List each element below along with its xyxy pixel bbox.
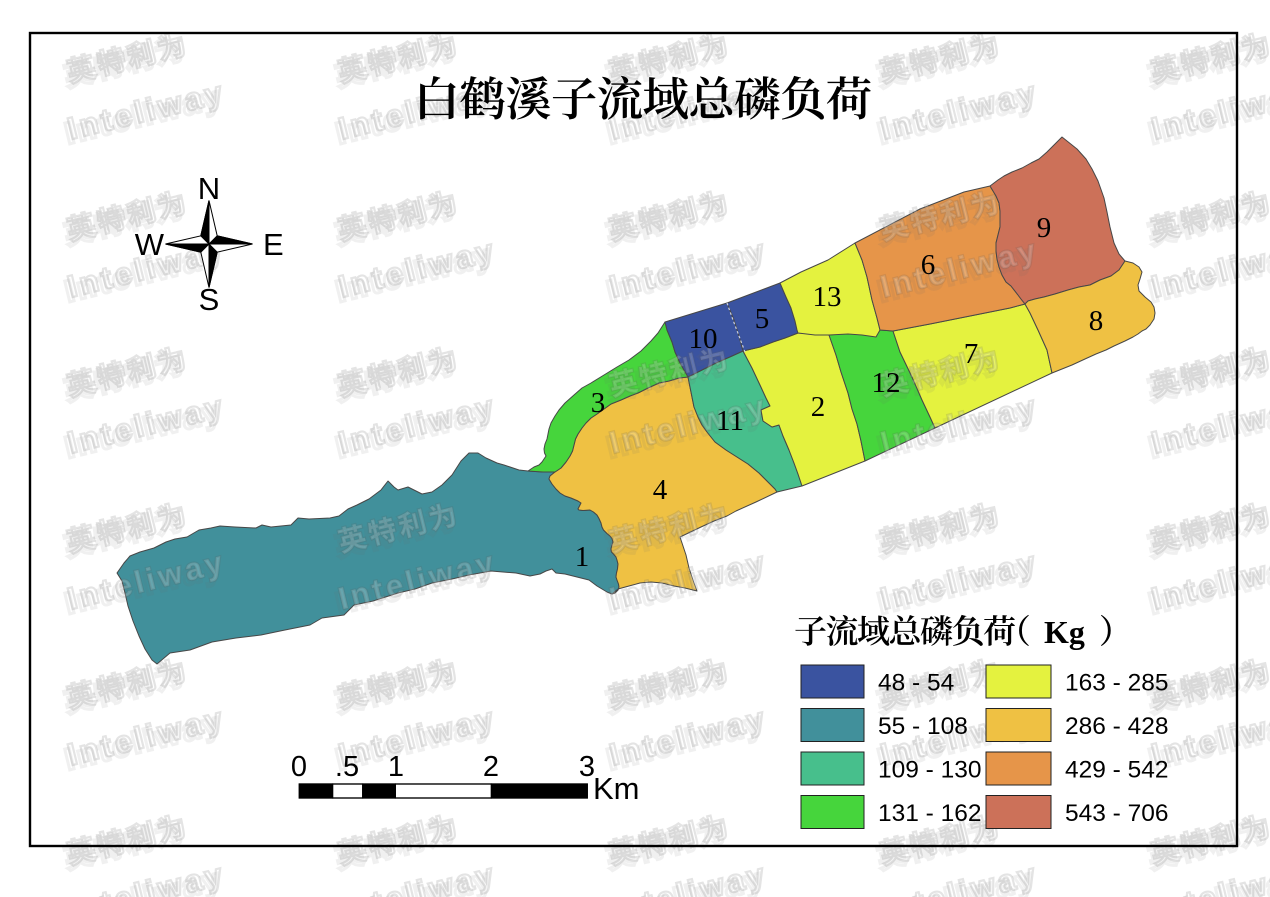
svg-text:10: 10 — [689, 323, 718, 355]
svg-text:2: 2 — [483, 751, 499, 783]
svg-text:12: 12 — [872, 367, 901, 399]
svg-text:7: 7 — [964, 338, 979, 370]
svg-text:4: 4 — [653, 474, 668, 506]
svg-text:Kg: Kg — [1044, 614, 1085, 650]
svg-text:S: S — [199, 282, 220, 317]
svg-text:13: 13 — [813, 281, 842, 313]
svg-text:W: W — [135, 227, 165, 262]
svg-text:131 - 162: 131 - 162 — [878, 800, 982, 827]
svg-text:0: 0 — [291, 751, 307, 783]
svg-text:109 - 130: 109 - 130 — [878, 757, 982, 784]
svg-text:286 - 428: 286 - 428 — [1065, 713, 1169, 740]
svg-text:5: 5 — [755, 303, 770, 335]
svg-text:429 - 542: 429 - 542 — [1065, 757, 1169, 784]
svg-text:2: 2 — [811, 391, 826, 423]
svg-text:543 - 706: 543 - 706 — [1065, 800, 1169, 827]
svg-text:48 - 54: 48 - 54 — [878, 670, 954, 697]
svg-text:.5: .5 — [335, 751, 359, 783]
svg-text:3: 3 — [591, 387, 606, 419]
svg-text:Km: Km — [593, 771, 640, 806]
svg-text:55 - 108: 55 - 108 — [878, 713, 968, 740]
svg-text:1: 1 — [388, 751, 404, 783]
svg-text:1: 1 — [575, 541, 590, 573]
svg-text:11: 11 — [716, 405, 744, 437]
svg-text:8: 8 — [1089, 305, 1104, 337]
svg-text:6: 6 — [921, 249, 936, 281]
svg-text:E: E — [263, 227, 284, 262]
svg-text:9: 9 — [1037, 212, 1052, 244]
svg-text:163 - 285: 163 - 285 — [1065, 670, 1169, 697]
svg-text:N: N — [198, 171, 220, 206]
